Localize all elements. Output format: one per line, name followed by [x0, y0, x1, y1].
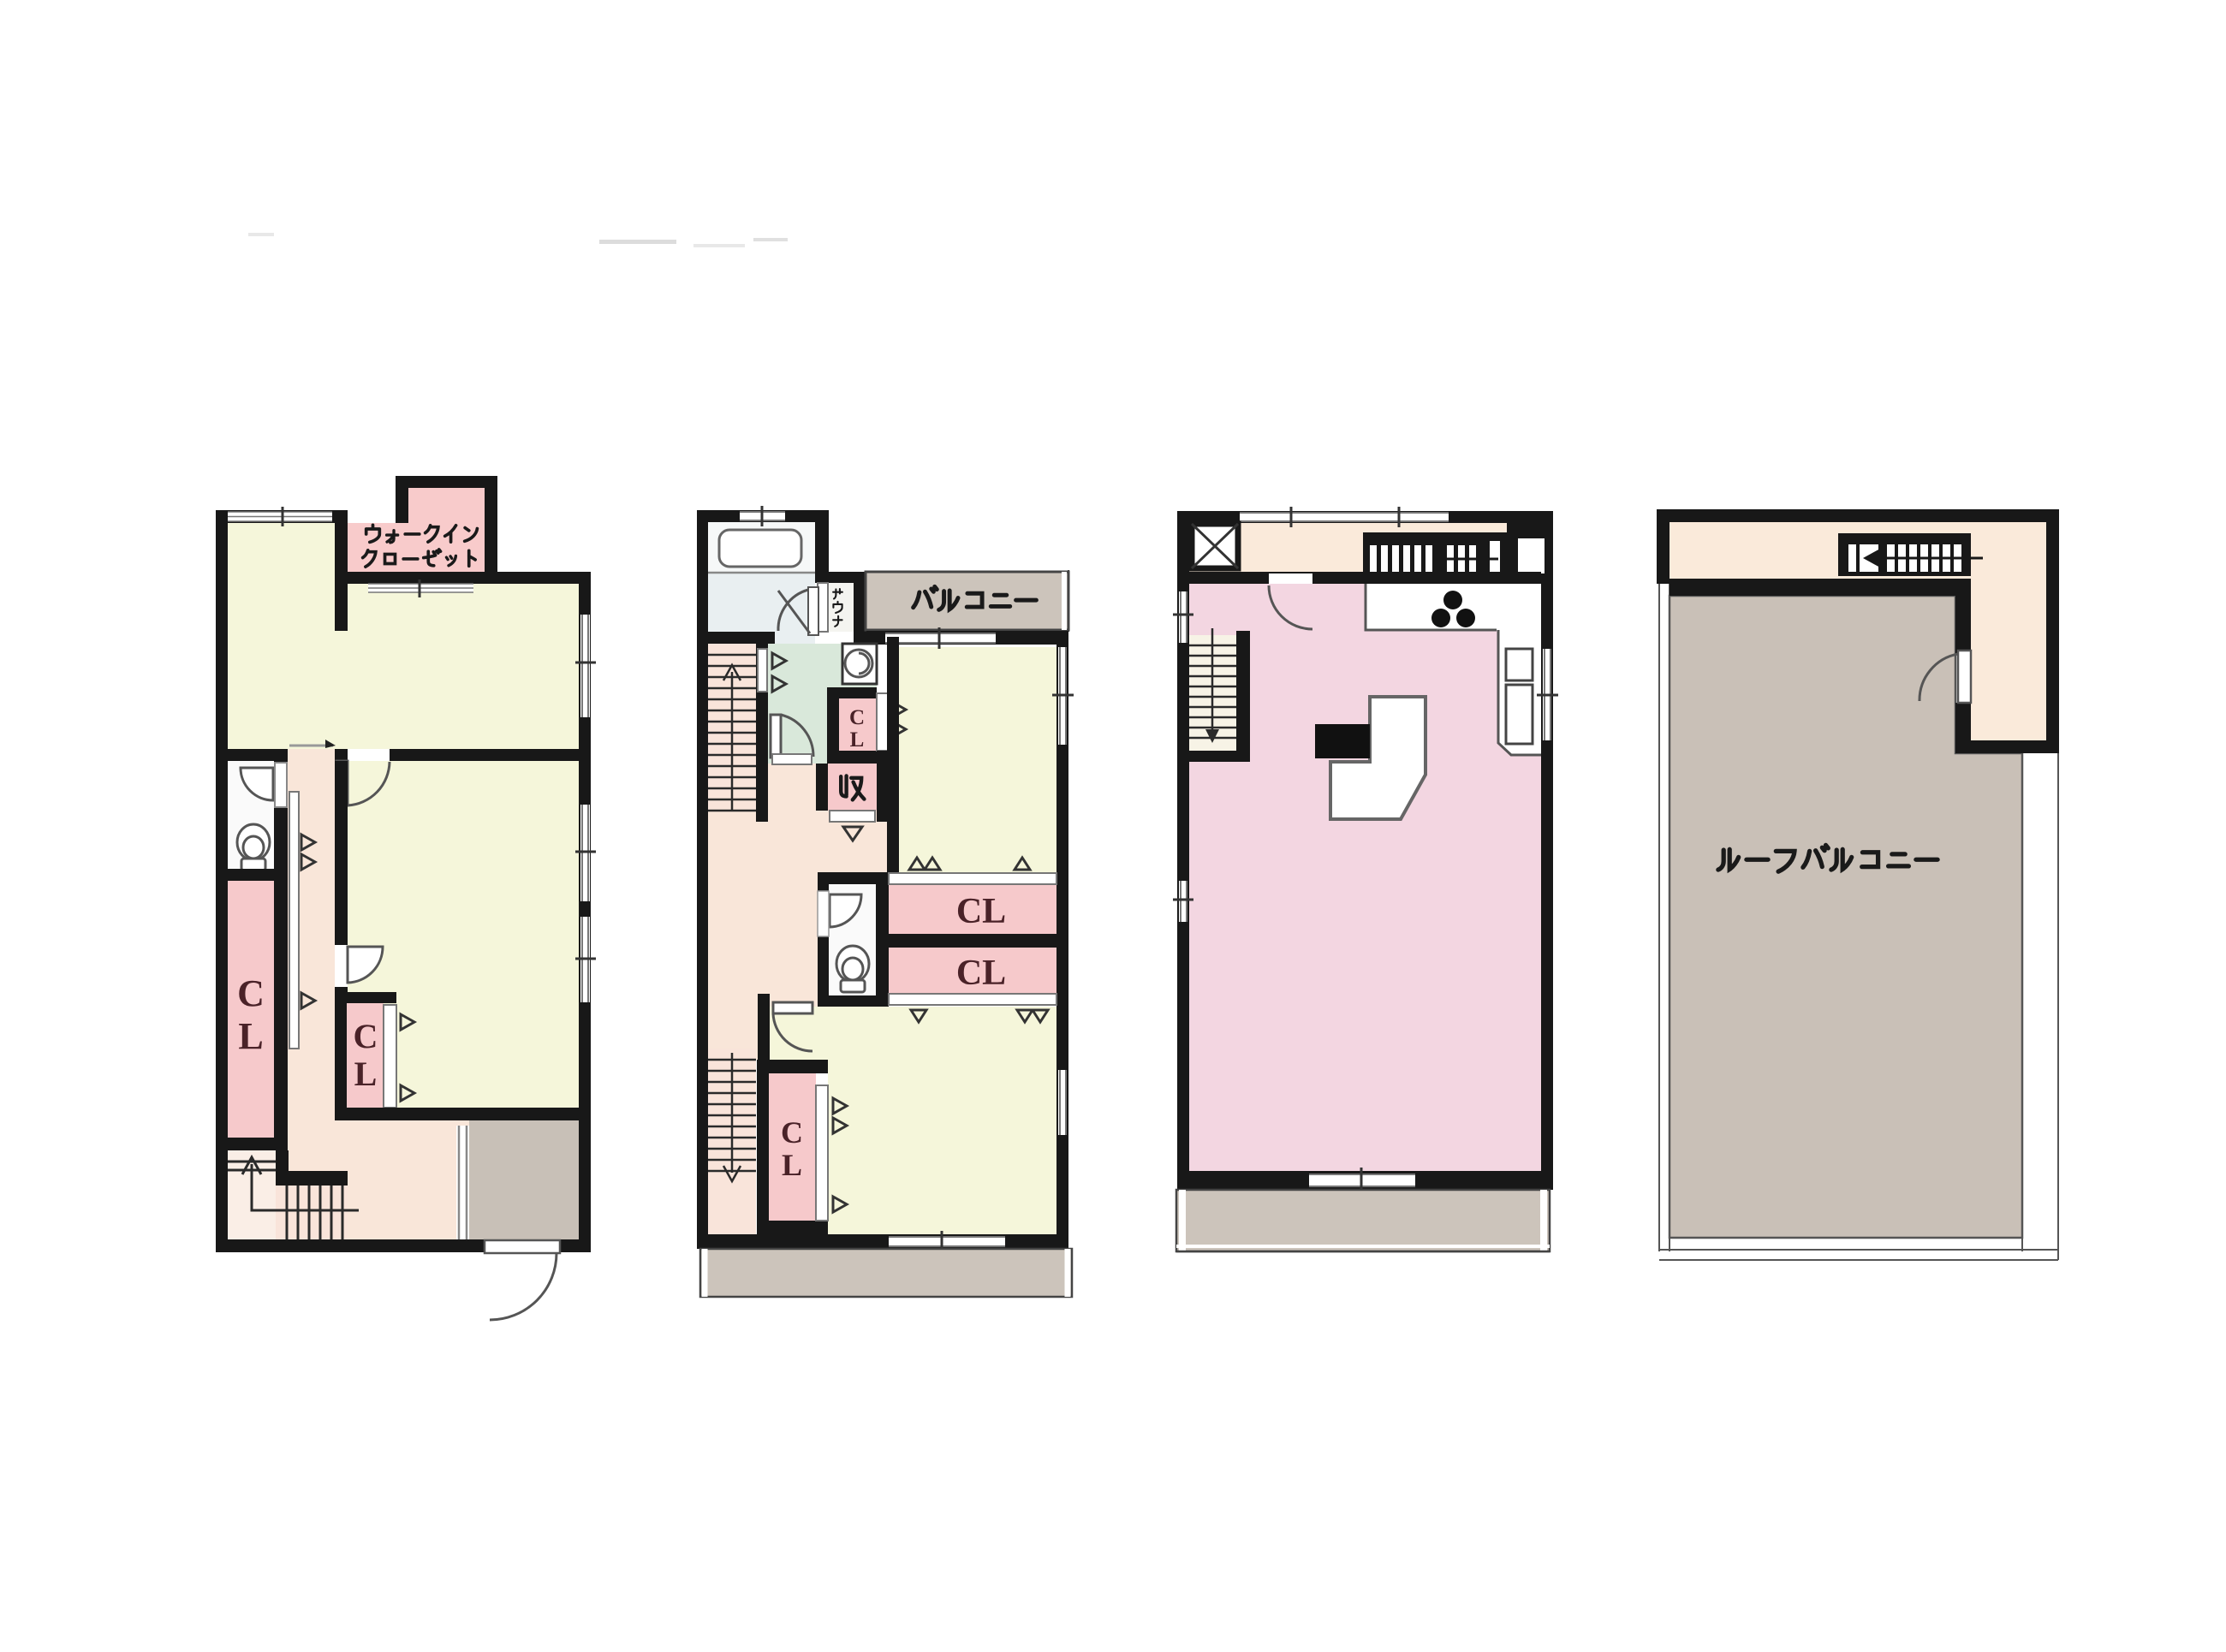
svg-text:C: C: [354, 1017, 378, 1055]
svg-text:L: L: [782, 1148, 802, 1182]
svg-text:CL: CL: [956, 954, 1006, 993]
svg-text:C: C: [781, 1115, 803, 1150]
svg-text:L: L: [354, 1055, 378, 1093]
svg-text:L: L: [850, 728, 865, 752]
svg-text:CL: CL: [956, 892, 1006, 931]
svg-text:C: C: [237, 972, 265, 1014]
svg-text:C: C: [849, 706, 865, 729]
svg-text:L: L: [238, 1015, 263, 1057]
